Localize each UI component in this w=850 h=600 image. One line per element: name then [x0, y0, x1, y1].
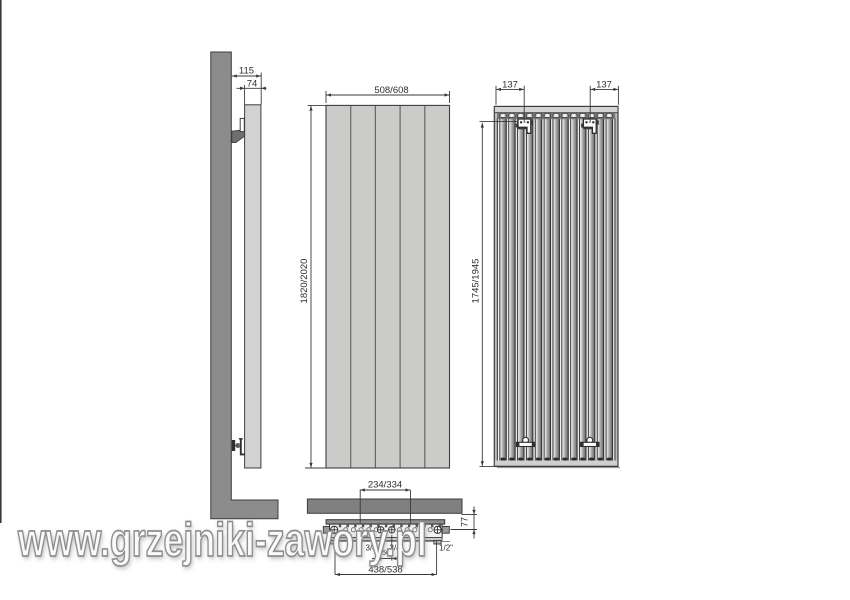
svg-text:137: 137 — [596, 79, 612, 90]
svg-text:77: 77 — [460, 517, 470, 527]
svg-text:115: 115 — [239, 66, 254, 77]
svg-text:234/334: 234/334 — [368, 480, 402, 491]
svg-text:74: 74 — [247, 78, 258, 89]
svg-text:137: 137 — [502, 79, 518, 90]
svg-text:1745/1945: 1745/1945 — [471, 259, 482, 304]
svg-text:508/608: 508/608 — [374, 85, 408, 96]
svg-text:1820/2020: 1820/2020 — [299, 259, 310, 304]
svg-text:1/2": 1/2" — [439, 544, 453, 553]
